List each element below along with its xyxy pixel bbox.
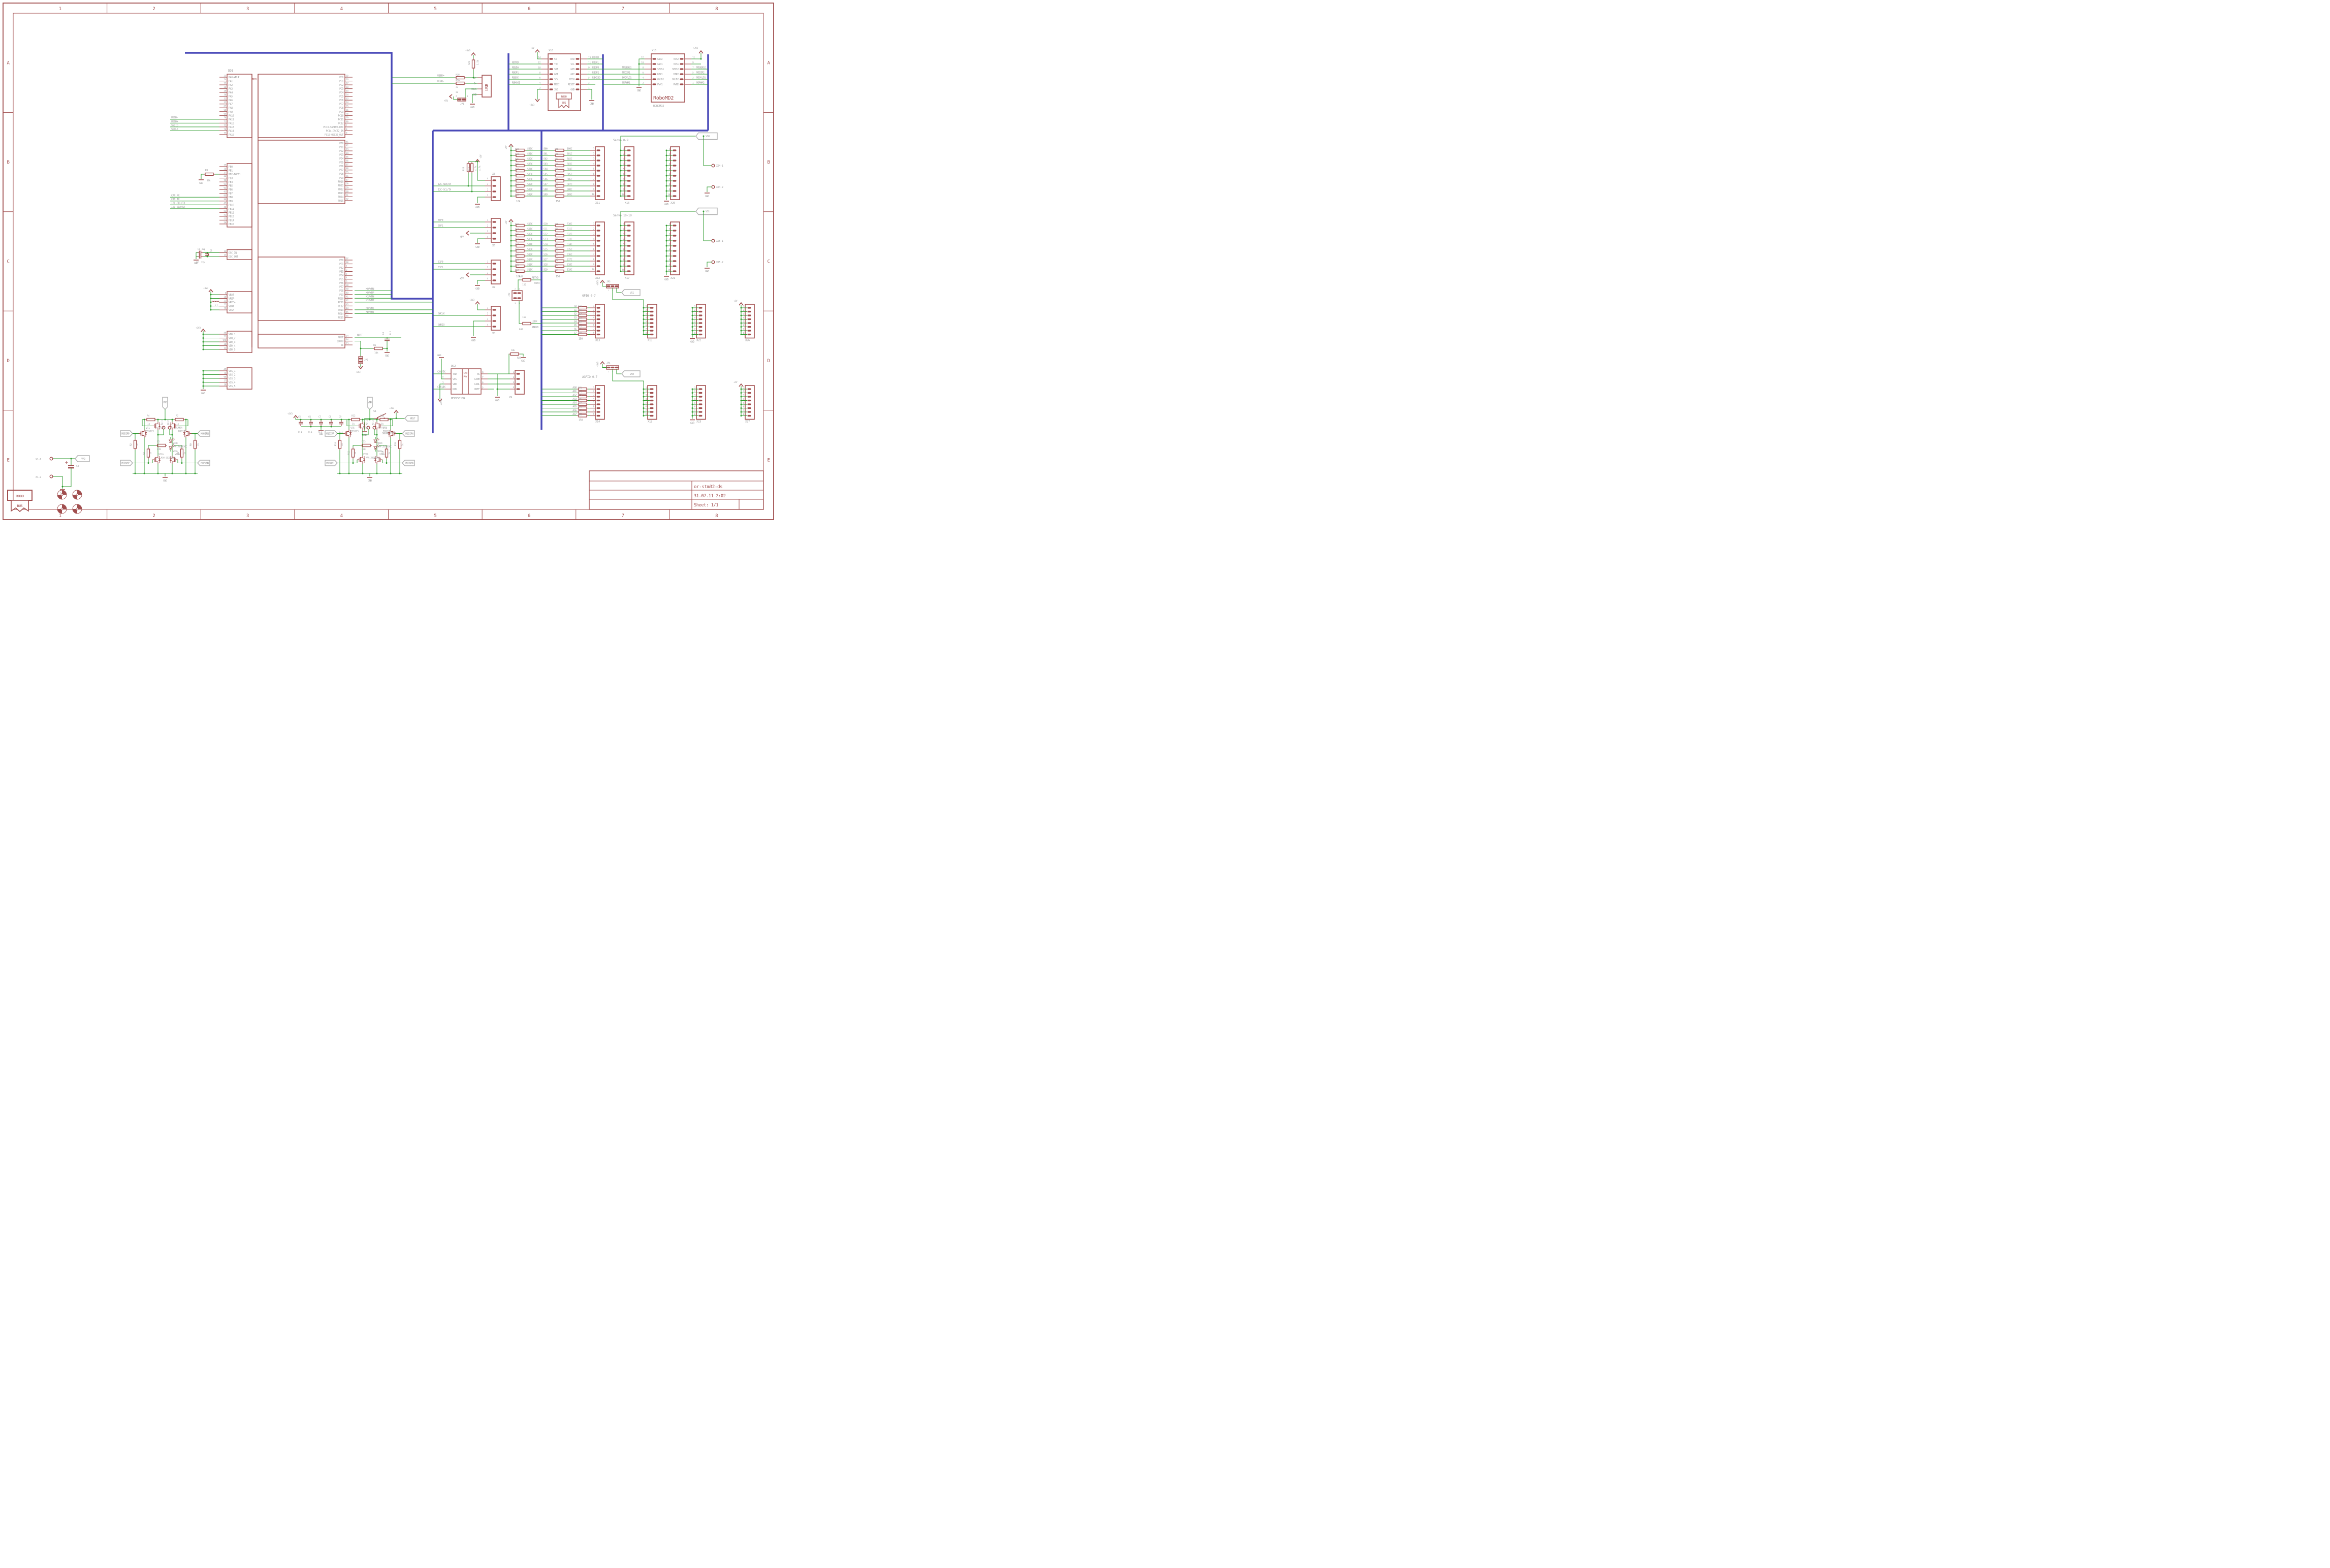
label-can.r22: R22 [517,357,521,360]
junction [157,419,159,421]
jumper [512,291,522,301]
label-mcu.pa.8.0: 67 [224,105,226,108]
aux.x7-connector[interactable]: 1234X7E1F0E1F1+5VGND [433,260,500,291]
aux.x8-connector[interactable]: 1234X8+3V3SWCLKGNDSWDIO [433,299,500,342]
label-sym.p5: +5V [460,277,464,280]
label-servo1019.series.3: R58 [555,238,559,241]
power-arrow-left-icon [466,273,469,277]
wire [148,445,156,447]
label-x15.left.5.2: MDPWM1 [622,81,630,84]
label-servo09.pull.6: R29 [515,178,519,181]
label-servo09.c_nets.5: S05C [567,173,572,176]
label-mcu.pd.5.0: 86 [346,159,348,163]
label-servo1019.pins.9: 10 [622,268,624,271]
junction [172,473,173,474]
label-gpio.nets.7: G7 [574,332,577,335]
label-servo1019.pull.1: R34 [515,228,519,231]
label-can.right.3.1: VREF [474,388,480,391]
label-mcu.pa.14.2: SWCLK [171,128,178,131]
label-mcu.vss.3.0: 27 [224,379,226,382]
label-mcu.pb.10.0: 47 [224,202,226,205]
label-servo1019.c_nets.7: S17C [567,258,572,261]
mcu-nets: USBD-USBD+SWDIOSWCLKCAN_RXCAN_TXI2C-SCL/… [170,78,456,314]
label-sym.vmd: VMD [81,458,85,461]
label-reset.nrst: NRST [410,417,416,420]
label-frame.rows.3: D [7,359,9,364]
servo09-rail-conns[interactable]: 1122334455667788991010X16X20GNDVS0X24-1X… [620,133,723,207]
label-servo09.pins.4: 5 [593,168,595,171]
pin-pad [493,274,496,275]
junction [360,348,362,349]
wire [170,429,172,435]
servo1019-bank[interactable]: Servo 10-19+5VR33S10CS10R55S10CR34S11CS1… [505,214,632,280]
label-servo09.pins.8: 9 [593,188,595,191]
label-servo09.c_nets.8: S08C [567,188,572,191]
label-motor1.rt2: R14 [380,414,385,418]
resistor [510,353,519,356]
wire [133,460,152,463]
pin-pad [650,392,654,394]
pin-pad [748,311,751,312]
refdes: X16 [625,202,629,205]
label-decap.names.0: C5 [298,415,301,419]
pin-pad [699,307,703,308]
label-x15.left.4.2: DMOVLD1 [622,76,632,79]
pin-pad [680,78,684,80]
label-frame.cols.1: 2 [152,514,155,519]
junction [473,77,474,79]
pin-pad [748,403,751,405]
pin-pad [493,238,496,239]
label-usb.pins.1: D- [474,82,477,85]
label-x15.left.2.1: SENS1 [657,68,664,71]
label-mcu.pb.9.1: PB9 [229,200,233,203]
label-mcu.pb.14.0: 53 [224,217,226,220]
label-mcu.pe.13.0: 44 [346,307,348,310]
resistor [471,164,473,172]
label-can.left.3.2: CAN_RX [437,386,445,389]
label-mcu.pa.14.1: PA14 [229,130,234,133]
x10-robobus-connector[interactable]: X10145V13RXDRBRXD12TXD11SCLRBTXDRBSCL10S… [508,47,603,111]
label-motor0.t1v: BSS123 [146,430,154,433]
pin-pad [597,185,600,186]
label-frame.cols.3: 4 [340,7,343,12]
label-servo1019.nets.4: S14 [544,243,548,246]
aux.x5-connector[interactable]: 4321X5+5VR16R174.7k4.7kI2C-SDA/RXI2C-SCL… [433,154,500,209]
pin-pad [673,225,677,226]
label-mcu.pe.10.0: 41 [346,296,348,299]
label-x15.left.4.1: OVLD1 [657,78,664,81]
box [258,334,345,348]
label-mcu.pc.14.1: PC14-OSC32_IN [326,130,344,133]
label-x15.right.4.2: MDOVLD2 [696,76,706,79]
box [595,386,604,420]
title-block: or-stm32-ds31.07.11 2:02Sheet: 1/1 [589,471,763,509]
label-mcu.sys.0.0: 14 [346,334,348,337]
label-x15.right.0.1: VSS2 [674,58,679,61]
net-flag: VS1 [622,290,640,296]
label-frame.cols.1: 2 [152,7,155,12]
wire [374,429,377,435]
label-mcu.vss.1.0: 74 [224,372,226,375]
refdes: DD2 [451,365,456,368]
junction [376,419,378,421]
wire [587,89,592,100]
label-can.tag2: PHY [463,375,467,378]
label-x15.right.3.2: MDDIR2 [696,71,705,74]
junction [390,473,392,474]
power-arrow-left-icon [466,231,469,235]
pin-pad [597,245,600,246]
pin-pad [699,334,703,335]
label-uart.r44: R44 [519,328,523,331]
label-x10.right.0.2: RBRXD [592,56,599,59]
label-mcu.pd.1.1: PD1 [339,146,343,149]
label-mcu.pd.15.0: 62 [346,198,348,201]
pin-pad [673,265,677,267]
x9-connector[interactable]: 1234X9GND [495,370,524,402]
resistor [362,444,370,447]
label-mcu.pd.10.0: 57 [346,179,348,182]
label-mcu.sys.2.1: NC [341,344,344,347]
junction [399,473,401,474]
label-mcu.pd.6.1: PD6 [339,165,343,168]
pin-pad [673,185,677,186]
pin-pad [673,149,677,151]
label-servo1019.nets.2: S12 [544,233,548,236]
label-x10.right.3.2: RBGP2 [592,71,599,74]
label-usb.r21: R21 [468,61,471,65]
label-aux.x5.pins.1.0: 3 [487,183,489,186]
label-x10.left.6.1: 3V3 [554,88,558,91]
usb-section[interactable]: USBD+D-VBUSGNDR18R192222USBD+USBD-R211.5… [437,49,491,109]
decoupling-caps[interactable]: +3V3GNDC50.1C60.1C70.1C80.1C90.1 [288,412,349,436]
label-mcu.pwr.1.1: VREF- [229,298,236,301]
junction [353,462,354,464]
label-sym.gnd: GND [385,355,389,358]
box [696,386,706,420]
label-mcu.pd.15.1: PD15 [338,200,343,203]
pin-pad [359,358,363,359]
pin-pad [650,330,654,331]
junction [210,298,212,299]
junction [195,433,196,434]
pin-pad [607,367,611,368]
pin-pad [650,411,654,412]
wire-pad [712,261,715,264]
label-gpio.res.0: R65 [578,305,582,308]
pin-pad [699,400,703,401]
label-sym.p5: +5V [505,220,508,225]
refdes: X12 [595,277,600,280]
label-gpio.nets.6: G6 [574,328,577,331]
resistor [352,419,360,421]
wire [617,288,622,293]
label-agpio.res.0: R73 [578,387,582,390]
wire [537,89,541,100]
x15-robomd2-connector[interactable]: X1512GND211VSS210GND19VSS18SENS17SENS2MD… [603,47,708,108]
box [651,54,685,102]
net-flag: VS0 [696,133,717,140]
label-mcu.pd.6.0: 87 [346,164,348,167]
label-usb.pins.2: VBUS [471,88,477,91]
label-mcu.pb.14.1: PB14 [229,219,234,222]
label-servo09.series.3: R48 [555,163,559,166]
pin-pad [597,314,600,316]
label-mcu.pa.5.1: PA5 [229,95,233,99]
label-servo1019.c_nets.7: S17C [527,258,533,261]
label-servo1019.pull.2: R35 [515,233,519,236]
label-servo09.c_nets.6: S06C [567,178,572,181]
label-mcu.pe.1.1: PE1 [339,263,343,266]
label-mcu.pe.9.2: M0PWMP [366,292,374,295]
label-servo1019.c_nets.5: S15C [527,248,533,251]
pin-pad [627,185,631,186]
label-servo1019.series.6: R61 [555,253,559,257]
refdes: X13 [595,339,600,342]
label-usb.pins.0: D+ [474,77,477,80]
junction [390,419,392,421]
label-mcu.pb.0.1: PB0 [229,166,233,169]
label-sym.p5: +5V [460,236,464,239]
label-motor0.ledv: KAA-3528ESGC [173,445,187,449]
refdes: X9 [509,396,512,399]
label-motor1.ledv: KAA-3528ESGC [377,445,392,449]
label-gpio.nets.3: G3 [574,316,577,319]
label-mcu.vdd.0.0: 50 [224,331,226,334]
label-aux.x8.pins.0.0: 1 [487,307,489,310]
label-servo1019.pins.7: 8 [593,258,595,261]
label-aux.x7.pins.1.0: 2 [487,266,489,269]
label-aux.x5.r16v: 4.7k [474,166,477,171]
label-servo09.series.0: R45 [555,148,559,151]
uart-jumper-cluster[interactable]: R43150RBTXDU2TXJP22413R44150U2RXRBRXD [508,275,541,331]
servo1019-rail-conns[interactable]: 1122334455667788991010X17X21GNDVS1X25-1X… [620,208,723,282]
junction [339,433,341,434]
junction [386,462,388,464]
agpio-rail-conns[interactable]: 123456781234567812345678X19X23X27GND+5V [643,381,755,425]
label-decap.names.2: C7 [318,415,321,419]
junction [148,462,149,464]
label-motor0.pwmp: M0PWMP [121,462,130,465]
label-servo09.pull.9: R32 [515,194,519,197]
pin-pad [597,159,600,161]
refdes: X20 [671,202,675,205]
section-title: GPIO 0-7 [582,294,596,298]
label-servo09.pull.2: R25 [515,158,519,161]
label-sym.p3: +3V3 [596,280,599,285]
refdes: X18 [648,339,652,342]
gpio-rail-conns[interactable]: 123456781234567812345678X18X22X26GND+5V [643,300,755,344]
label-sym.p3: +3V3 [196,327,201,330]
label-servo09.nets.6: S06 [544,178,548,181]
label-motor0.r_v: 1k [149,452,152,455]
label-servo09.c_nets.2: S02C [567,157,572,161]
label-mcu.pb.2.0: 37 [224,171,226,174]
label-x10.left.5.2: RBMOSI [512,81,520,84]
power-input[interactable]: X1-1VMDC3X1-2GND [36,456,89,495]
gpio-jumper[interactable]: JP3123+3V3VS1 [596,280,644,308]
resistor [194,440,197,449]
label-aux.x5.pins.1.1: I2C-SDA/RX [438,183,451,186]
pin-pad [650,307,654,308]
net-flag: VS1 [696,208,717,215]
junction [300,419,302,421]
reset-cluster[interactable]: NRSTC40.1R610kGNDJP5+3V3 [355,331,401,374]
label-mcu.pa.0.0: 23 [224,74,226,77]
pin-pad [699,311,703,312]
label-mcu.pe.9.1: PE9 [339,294,343,297]
net-flag: M1PWMN [402,460,414,466]
label-x15.right.4.1: OVLD2 [672,78,679,81]
refdes: X11 [595,202,600,205]
label-mcu.pd.14.1: PD14 [338,196,343,199]
wire [201,174,204,179]
label-frame.cols.7: 8 [715,514,718,519]
label-frame.rows.3: D [767,359,770,364]
pin-pad [611,285,615,287]
label-usb.jp1_pins.0: 2 [456,95,457,98]
label-agpio.pins.2: 3 [593,394,595,397]
refdes: X6 [492,244,495,247]
pin-pad [576,63,580,65]
label-mcu.pc.4.0: 33 [346,90,348,93]
resistor [134,440,137,449]
label-mcu.pc.5.1: PC5 [339,95,343,99]
label-gpio.jp: JP3 [607,280,611,283]
label-power_in.c3: C3 [76,465,79,468]
pin-pad [597,165,600,166]
label-decap.value: 0.1 [308,431,312,434]
resistor [181,449,183,457]
label-osc_parts.c2: C2 [196,261,199,264]
pin-pad [550,63,553,65]
label-mcu.pa.1.0: 24 [224,78,226,81]
label-sym.p3: +3V3 [440,400,443,405]
label-gpio.jp_pins.0: 1 [608,289,610,292]
motor0-driver[interactable]: VMDR41kR71kVT1BSS123VT4BSS123VT2BVT3BVT2… [120,397,210,483]
motor1-driver[interactable]: VMDR121kR141kVT5BSS123VT8BSS123VT6BVT7BV… [325,397,414,483]
servo09-bank[interactable]: Servo 0-9+5VR23S00CS00R45S00CR24S01CS01R… [505,139,628,205]
label-gpio.res.2: R67 [578,313,582,316]
net-flag: M1DIRN [402,431,414,436]
label-servo1019.pull.6: R39 [515,253,519,257]
label-mcu.pb.5.0: 91 [224,183,226,186]
pin-pad [650,314,654,316]
label-mcu.pa.11.2: USBD- [171,116,178,119]
section-title: Servo 10-19 [613,214,632,217]
agpio-jumper[interactable]: JP4123+3V3VS0 [596,362,644,389]
label-servo09.nets.5: S05 [544,173,548,176]
label-x15.left.0.1: GND2 [657,58,663,61]
label-mcu.pe.2.1: PE2 [339,267,343,270]
label-servo1019.c_nets.2: S12C [527,233,533,236]
label-servo1019.nets.0: S10 [544,222,548,226]
wire [378,439,379,440]
label-motor0.ab.1: VT3B [175,427,180,430]
gpio-bank[interactable]: GPIO 0-7G0R65G1R66G2R67G3R68G4R69G5R70G6… [541,294,604,342]
pin-pad [748,314,751,316]
power-arrow-left-icon [450,94,452,99]
label-mcu.pe.13.2: MDPWM1 [366,307,374,310]
pin-pad [748,322,751,324]
label-servo09.pins.2: 3 [593,157,595,161]
label-mcu.pe.1.0: 98 [346,261,348,264]
label-mcu.pd.12.1: PD12 [338,188,343,191]
label-mcu.pa.3.1: PA3 [229,88,233,91]
pin-pad [597,240,600,241]
label-mcu.pa.12.0: 71 [224,120,226,123]
label-servo1019.c_nets.4: S14C [567,243,572,246]
label-motor0.rt_v: 1k [147,423,150,426]
section-title: AGPIO 0-7 [582,375,597,379]
label-mcu.vss.1.1: VSS_2 [229,374,236,377]
label-motor1.rt_v: 1k [381,423,384,426]
label-servo09.pull.3: R26 [515,163,519,166]
label-mcu.pa.7.1: PA7 [229,103,233,106]
label-x10.right.3.1: GP2 [570,73,574,76]
pin-pad [597,388,600,390]
label-gpio.nets.5: G5 [574,324,577,327]
pin-pad [627,149,631,151]
label-mcu.pd.3.0: 84 [346,152,348,155]
pin-pad [748,396,751,397]
agpio-bank[interactable]: AGPIO 0-7AG0R73AG1R74AG2R75AG3R76AG4R77A… [541,375,604,424]
net-flag: M1DIRP [325,431,337,436]
label-sym.gnd: GND [705,270,709,273]
label-frame.cols.0: 1 [59,7,61,12]
junction [310,426,312,428]
label-x10.right.1.1: SCL [570,63,574,66]
label-aux.x7.pins.1.1: E1F1 [438,266,443,269]
label-mcu.pd.4.0: 85 [346,156,348,159]
label-osc_parts.c2v: 22p [201,261,205,264]
wire-pad [712,239,715,242]
label-mcu.pb.15.0: 54 [224,221,226,224]
label-motor1.ab.1: VT7B [379,427,385,430]
junction [135,433,136,434]
label-sym.gnd: GND [201,392,205,395]
resistor [523,279,531,281]
pin-pad [653,58,656,59]
label-gpio.res.7: R72 [578,332,582,335]
label-mcu.pa.14.0: 76 [224,128,226,131]
label-usb.r19v: 22 [456,91,459,94]
junction [62,486,63,488]
pin-pad [680,63,684,65]
label-x15.right.5.2: MDPWM2 [696,81,705,84]
aux.x6-connector[interactable]: 1234X6E0F0E0F1+5VGND [433,218,500,249]
net-flag: M0DIRN [198,431,210,436]
pin-pad [653,83,656,85]
label-sym.gnd: GND [437,354,441,357]
label-servo09.series.6: R51 [555,178,559,181]
schematic-canvas: 1122334455667788AABBCCDDEEor-stm32-ds31.… [0,0,777,523]
pin-pad [673,180,677,181]
label-servo09.pins.0: 1 [593,147,595,150]
label-mcu.sys.2.0: 73 [346,342,348,345]
label-motor0.led2: VD1G [173,450,178,453]
mcu-dd1[interactable]: DD123PA0-WKUP24PA125PA226PA329PA430PA531… [219,69,353,389]
label-mcu.pe.3.1: PE3 [339,271,343,274]
label-mcu.pe.8.0: 39 [346,288,348,291]
label-agpio.pins.3: 4 [593,398,595,401]
mcu-support[interactable]: GNDR110kGNDC122pQ1C222pL1+3V3+3V3GND [194,169,219,395]
pin-pad [699,314,703,316]
label-motor0.rg2: R9 [189,443,193,446]
pin-pad [673,175,677,176]
pin-pad [650,396,654,397]
